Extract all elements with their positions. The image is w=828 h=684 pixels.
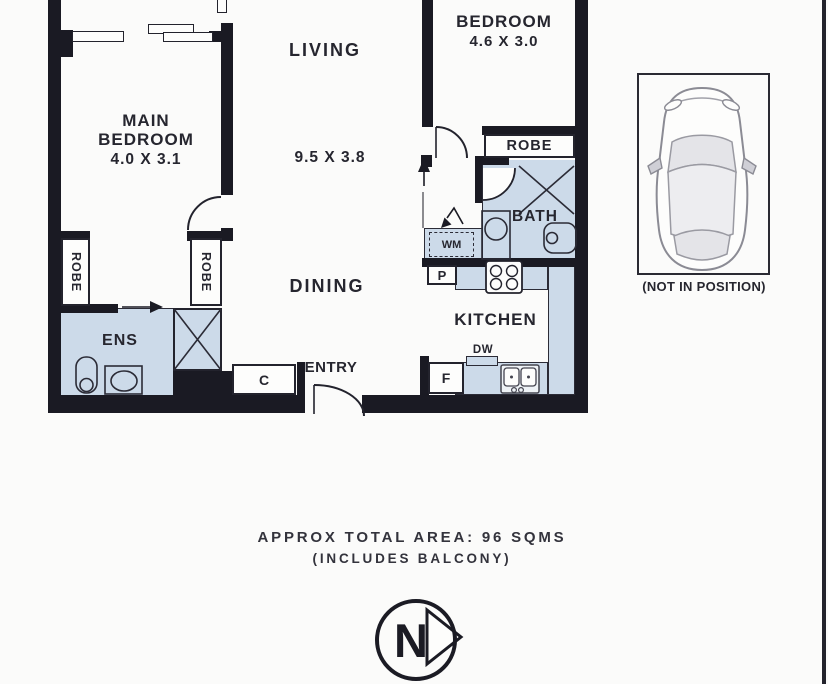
room-label-dining: DINING	[272, 277, 382, 297]
main-bedroom-door-arc	[188, 197, 221, 230]
dishwasher-label: DW	[467, 344, 499, 357]
bedroom2-robe-label: ROBE	[486, 136, 573, 156]
bedroom2-dims: 4.6 X 3.0	[448, 34, 560, 51]
kitchen-bench-right	[548, 264, 575, 395]
fridge-box: F	[428, 362, 464, 394]
robe-right-label: ROBE	[199, 252, 213, 292]
cupboard-box: C	[232, 364, 296, 395]
wall-left	[48, 0, 61, 413]
room-label-entry: ENTRY	[295, 360, 367, 377]
washing-machine-box: WM	[429, 232, 474, 257]
page-edge-line	[822, 0, 826, 684]
fridge-label: F	[430, 364, 462, 392]
room-label-living: LIVING	[270, 41, 380, 61]
window-mainbed	[72, 31, 124, 42]
compass-n-label: N	[394, 614, 428, 667]
main-bedroom-line1: MAIN	[86, 112, 206, 131]
wall-bathdoor-stub	[475, 164, 482, 203]
washing-machine-label: WM	[430, 233, 473, 256]
bedroom2-door-arc	[436, 127, 467, 158]
laundry-arrow-icon	[441, 208, 463, 228]
wall-bottom-right	[362, 395, 588, 413]
bedroom2-name: BEDROOM	[448, 13, 560, 32]
bedroom2-robe-box: ROBE	[484, 134, 575, 158]
entry-door-arc	[314, 385, 364, 416]
robe-right-box: ROBE	[190, 238, 222, 306]
wall-bed2-door-stub	[421, 155, 432, 167]
balcony-note-text: (INCLUDES BALCONY)	[164, 551, 660, 566]
wall-living-kitchen	[422, 0, 433, 127]
ens-shower	[173, 308, 222, 371]
wall-stub-top-edge	[217, 0, 227, 13]
living-dims: 9.5 X 3.8	[275, 149, 385, 166]
wall-mainbed-living	[221, 23, 233, 195]
cupboard-label: C	[234, 366, 294, 393]
pantry-label: P	[429, 267, 455, 283]
main-bedroom-dims: 4.0 X 3.1	[86, 151, 206, 168]
north-compass-icon: N	[377, 601, 461, 679]
total-area-text: APPROX TOTAL AREA: 96 SQMS	[164, 529, 660, 546]
dishwasher-box	[466, 356, 498, 366]
room-label-bedroom2: BEDROOM 4.6 X 3.0	[448, 13, 560, 50]
room-label-bath: BATH	[500, 208, 570, 225]
hall-direction-arrow-icon	[418, 158, 430, 228]
floorplan-page: WM ROBE ROBE ROBE C F P	[0, 0, 828, 684]
wall-ens-block	[173, 371, 233, 399]
robe-left-label: ROBE	[69, 252, 83, 292]
robe-left-box: ROBE	[61, 238, 90, 306]
sliding-door-leaf-b	[163, 32, 213, 42]
room-label-ens: ENS	[90, 332, 150, 350]
car-space-box	[637, 73, 770, 275]
kitchen-bench-top	[455, 264, 548, 290]
main-bedroom-line2: BEDROOM	[86, 131, 206, 150]
room-label-main-bedroom: MAIN BEDROOM 4.0 X 3.1	[86, 112, 206, 168]
car-space-caption: (NOT IN POSITION)	[622, 280, 786, 294]
kitchen-bench-bottom	[455, 362, 548, 395]
room-label-kitchen: KITCHEN	[448, 311, 543, 330]
wall-right	[575, 0, 588, 413]
pantry-box: P	[427, 265, 457, 285]
